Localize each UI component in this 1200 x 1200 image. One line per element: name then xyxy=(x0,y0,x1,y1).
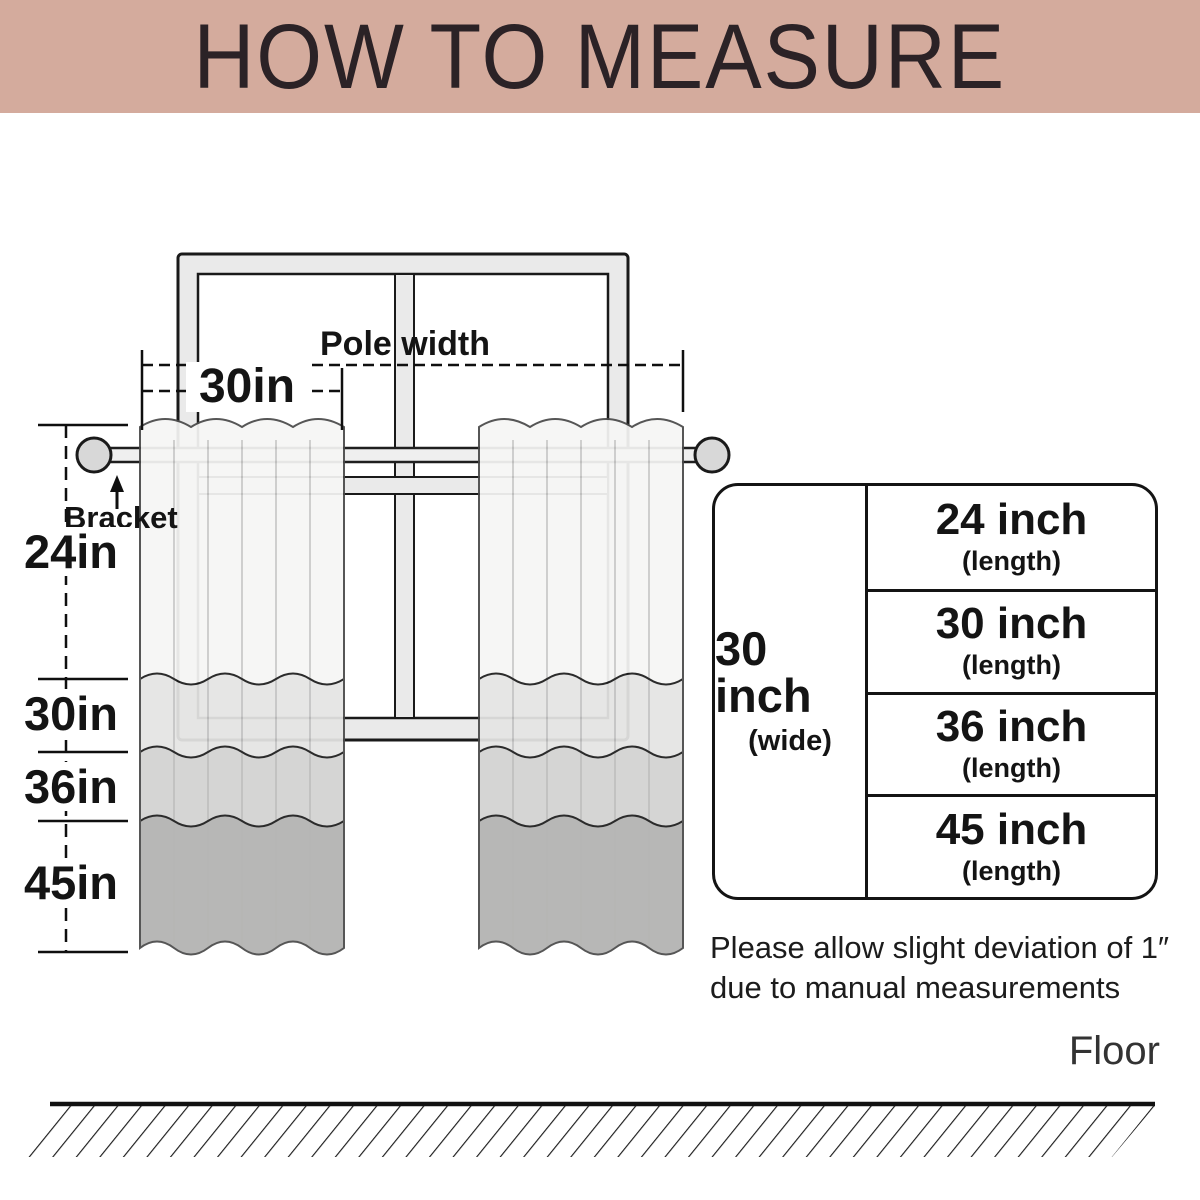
size-table-row-36: 36 inch (length) xyxy=(868,692,1155,795)
size-table-row-45: 45 inch (length) xyxy=(868,794,1155,897)
length-unit-label: (length) xyxy=(962,546,1061,577)
length-value: 30 inch xyxy=(936,602,1088,646)
curtain-panel-left xyxy=(140,408,344,965)
size-table-row-24: 24 inch (length) xyxy=(868,486,1155,589)
pole-width-label: Pole width xyxy=(295,327,515,363)
length-mark-24in: 24in xyxy=(10,527,132,576)
bracket-finial-left xyxy=(77,438,111,472)
length-mark-30in: 30in xyxy=(10,689,132,738)
size-table: 30 inch (wide) 24 inch (length) 30 inch … xyxy=(712,483,1158,900)
bracket-finial-right xyxy=(695,438,729,472)
deviation-note-line2: due to manual measurements xyxy=(710,968,1169,1008)
length-value: 36 inch xyxy=(936,705,1088,749)
deviation-note-line1: Please allow slight deviation of 1″ xyxy=(710,928,1169,968)
size-table-row-30: 30 inch (length) xyxy=(868,589,1155,692)
width-unit-label: (wide) xyxy=(748,725,832,758)
length-value: 45 inch xyxy=(936,808,1088,852)
floor-label: Floor xyxy=(1040,1030,1160,1072)
curtain-panel-right xyxy=(479,408,683,965)
size-table-width-cell: 30 inch (wide) xyxy=(715,486,868,897)
pole-width-value: 30in xyxy=(186,362,308,412)
width-value: 30 inch xyxy=(715,625,865,719)
length-mark-36in: 36in xyxy=(10,762,132,811)
deviation-note: Please allow slight deviation of 1″ due … xyxy=(710,928,1169,1009)
length-unit-label: (length) xyxy=(962,856,1061,887)
length-mark-45in: 45in xyxy=(10,858,132,907)
length-unit-label: (length) xyxy=(962,650,1061,681)
floor-hatch xyxy=(20,1104,1155,1157)
length-value: 24 inch xyxy=(936,498,1088,542)
length-unit-label: (length) xyxy=(962,753,1061,784)
